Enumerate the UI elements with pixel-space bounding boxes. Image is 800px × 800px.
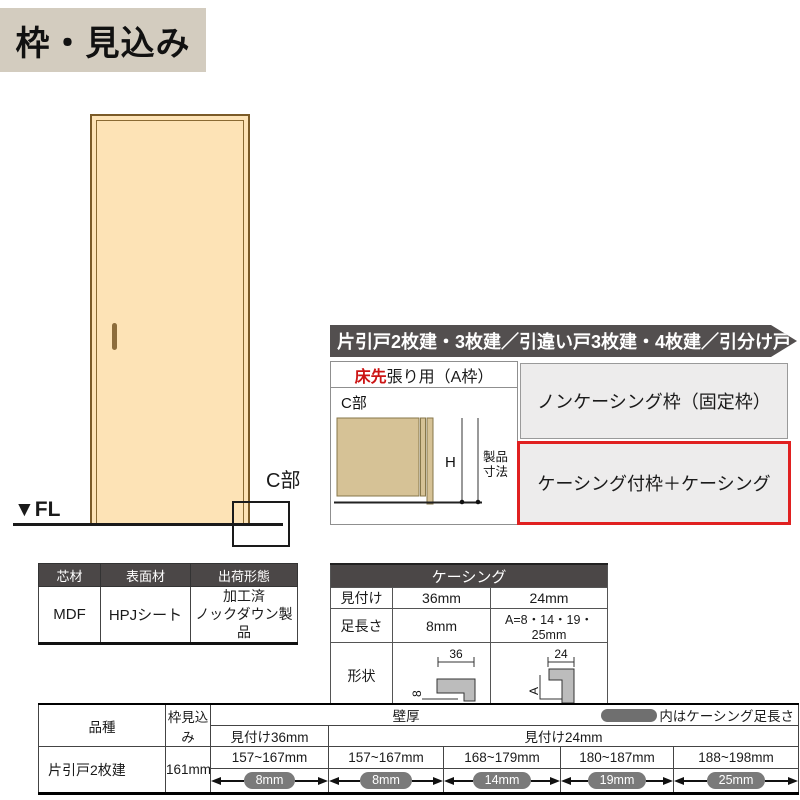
casing-leg-pill-1: 8mm <box>244 772 296 789</box>
shape36-width-label: 36 <box>449 647 463 661</box>
diagram-c-label: C部 <box>341 395 367 412</box>
arrow-left-icon <box>329 777 339 785</box>
casing-mitsuke-36: 36mm <box>393 588 491 609</box>
casing-row-ashinaga-label: 足長さ <box>331 609 393 643</box>
h-dimension-end <box>460 500 465 505</box>
legend-note: 内はケーシング足長さ <box>659 705 794 725</box>
arrow-left-icon <box>444 777 454 785</box>
spec-header-depth: 枠見込み <box>166 704 211 747</box>
shape24-width-label: 24 <box>554 647 568 661</box>
arrow-right-icon <box>788 777 798 785</box>
material-table: 芯材 表面材 出荷形態 MDF HPJシート 加工済 ノックダウン製品 <box>38 563 298 645</box>
casing-table: ケーシング 見付け 36mm 24mm 足長さ 8mm A=8・14・19・25… <box>330 563 608 710</box>
legend: 内はケーシング足長さ <box>601 705 798 725</box>
panel-edge-strip <box>421 418 426 496</box>
spec-header-wall: 壁厚 内はケーシング足長さ <box>211 704 799 726</box>
product-dim-label-2: 寸法 <box>483 465 508 479</box>
product-dim-label-1: 製品 <box>483 450 508 464</box>
frame-header-rest: 張り用（A枠） <box>387 363 494 387</box>
material-surface-value: HPJシート <box>101 587 191 644</box>
shipping-line2: ノックダウン製品 <box>191 605 297 641</box>
frame-header-red: 床先 <box>355 363 387 387</box>
casing-leg-cell-3: 14mm <box>444 769 561 794</box>
frame-strip <box>427 418 433 504</box>
casing-row-mitsuke-label: 見付け <box>331 588 393 609</box>
casing-leg-cell-4: 19mm <box>561 769 674 794</box>
casing-mitsuke-24: 24mm <box>491 588 608 609</box>
casing-shape-label: 形状 <box>331 643 393 710</box>
arrow-left-icon <box>211 777 221 785</box>
material-header-surface: 表面材 <box>101 564 191 587</box>
arrow-left-icon <box>561 777 571 785</box>
frame-section-header: 床先張り用（A枠） <box>331 362 517 388</box>
wall-range-3: 168~179mm <box>444 747 561 769</box>
door-inner-frame <box>96 120 244 523</box>
spec-row-depth: 161mm <box>166 747 211 794</box>
door-types-banner: 片引戸2枚建・3枚建／引違い戸3枚建・4枚建／引分け戸 <box>330 325 797 357</box>
floor-first-frame-section: 床先張り用（A枠） C部 H 製品 寸法 <box>330 361 518 525</box>
arrow-right-icon <box>433 777 443 785</box>
door-handle <box>112 323 117 350</box>
c-section-marker-box <box>232 501 290 547</box>
casing-profile-24-shape <box>549 669 574 703</box>
wall-range-5: 188~198mm <box>674 747 799 769</box>
casing-ashinaga-24: A=8・14・19・25mm <box>491 609 608 643</box>
casing-leg-pill-5: 25mm <box>707 772 766 789</box>
spec-table: 品種 枠見込み 壁厚 内はケーシング足長さ 見付け36mm 見付け24mm 片引… <box>38 703 799 795</box>
casing-leg-pill-3: 14mm <box>473 772 532 789</box>
h-label: H <box>445 454 456 471</box>
material-header-core: 芯材 <box>39 564 101 587</box>
casing-profile-36-diagram: 36 8 <box>394 644 490 707</box>
casing-table-title: ケーシング <box>331 564 608 588</box>
shipping-line1: 加工済 <box>191 587 297 605</box>
shape36-leg-label: 8 <box>410 690 424 697</box>
wall-range-1: 157~167mm <box>211 747 329 769</box>
wall-range-2: 157~167mm <box>329 747 444 769</box>
option-non-casing-label: ノンケーシング枠（固定枠） <box>537 388 771 414</box>
page-title-text: 枠・見込み <box>16 16 191 65</box>
spec-sub24: 見付け24mm <box>329 726 799 747</box>
door-panel-section <box>337 418 419 496</box>
door-types-banner-text: 片引戸2枚建・3枚建／引違い戸3枚建・4枚建／引分け戸 <box>330 328 791 354</box>
spec-sub36: 見付け36mm <box>211 726 329 747</box>
wall-range-4: 180~187mm <box>561 747 674 769</box>
option-casing-label: ケーシング付枠＋ケーシング <box>537 470 770 496</box>
shape24-leg-label: A <box>527 687 541 695</box>
material-header-shipping: 出荷形態 <box>191 564 298 587</box>
casing-ashinaga-36: 8mm <box>393 609 491 643</box>
door-illustration <box>90 114 250 525</box>
c-section-label: C部 <box>266 464 300 493</box>
casing-leg-cell-1: 8mm <box>211 769 329 794</box>
product-dimension-end <box>476 500 481 505</box>
casing-shape-36-cell: 36 8 <box>393 643 491 710</box>
casing-shape-24-cell: 24 A <box>491 643 608 710</box>
catalog-page: 枠・見込み ▼FL C部 芯材 表面材 出荷形態 MDF HPJシート 加工済 … <box>0 0 800 800</box>
spec-row-kind: 片引戸2枚建 <box>39 747 166 794</box>
legend-pill-icon <box>601 709 657 722</box>
arrow-right-icon <box>318 777 328 785</box>
option-non-casing-frame: ノンケーシング枠（固定枠） <box>520 363 788 439</box>
arrow-left-icon <box>674 777 684 785</box>
casing-leg-pill-2: 8mm <box>360 772 412 789</box>
casing-leg-pill-4: 19mm <box>588 772 647 789</box>
spec-header-kind: 品種 <box>39 704 166 747</box>
page-title: 枠・見込み <box>0 8 206 72</box>
arrow-right-icon <box>550 777 560 785</box>
material-core-value: MDF <box>39 587 101 644</box>
arrow-right-icon <box>663 777 673 785</box>
option-casing-frame-highlighted: ケーシング付枠＋ケーシング <box>517 441 791 525</box>
casing-profile-36-shape <box>437 679 475 701</box>
casing-leg-cell-5: 25mm <box>674 769 799 794</box>
frame-cross-section-diagram: C部 H 製品 寸法 <box>331 388 517 526</box>
casing-profile-24-diagram: 24 A <box>492 644 607 707</box>
material-shipping-value: 加工済 ノックダウン製品 <box>191 587 298 644</box>
wall-thickness-label: 壁厚 <box>211 705 601 725</box>
floor-level-label: ▼FL <box>14 498 60 522</box>
casing-leg-cell-2: 8mm <box>329 769 444 794</box>
